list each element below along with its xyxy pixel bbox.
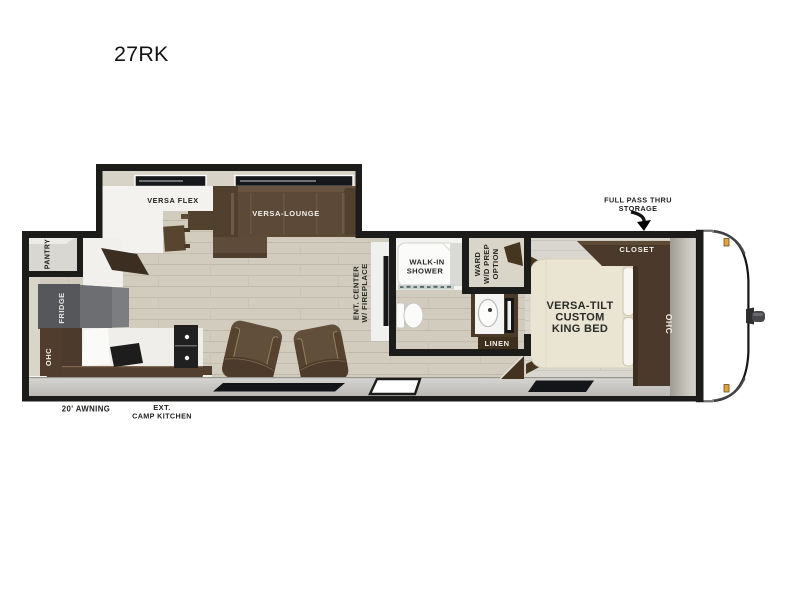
svg-text:FRIDGE: FRIDGE [57,292,66,323]
svg-text:W/D PREP: W/D PREP [482,244,491,284]
svg-text:LINEN: LINEN [485,339,510,348]
svg-text:20' AWNING: 20' AWNING [62,405,110,414]
svg-text:27RK: 27RK [114,42,169,66]
svg-text:OHC: OHC [44,348,53,366]
svg-text:CAMP KITCHEN: CAMP KITCHEN [132,411,192,420]
svg-text:VERSA-TILT: VERSA-TILT [547,300,614,312]
svg-text:WALK-IN: WALK-IN [409,258,444,267]
svg-text:PANTRY: PANTRY [45,239,52,269]
svg-text:OHC: OHC [664,314,674,334]
svg-text:STORAGE: STORAGE [619,204,658,213]
svg-text:KING BED: KING BED [552,323,608,335]
svg-text:OPTION: OPTION [491,249,500,280]
svg-text:W/ FIREPLACE: W/ FIREPLACE [360,263,369,322]
svg-text:SHOWER: SHOWER [407,267,444,276]
svg-text:WARD: WARD [473,252,482,277]
svg-text:CUSTOM: CUSTOM [555,312,604,324]
svg-text:VERSA-LOUNGE: VERSA-LOUNGE [252,209,320,218]
svg-text:CLOSET: CLOSET [619,245,654,254]
svg-text:VERSA FLEX: VERSA FLEX [147,196,199,205]
